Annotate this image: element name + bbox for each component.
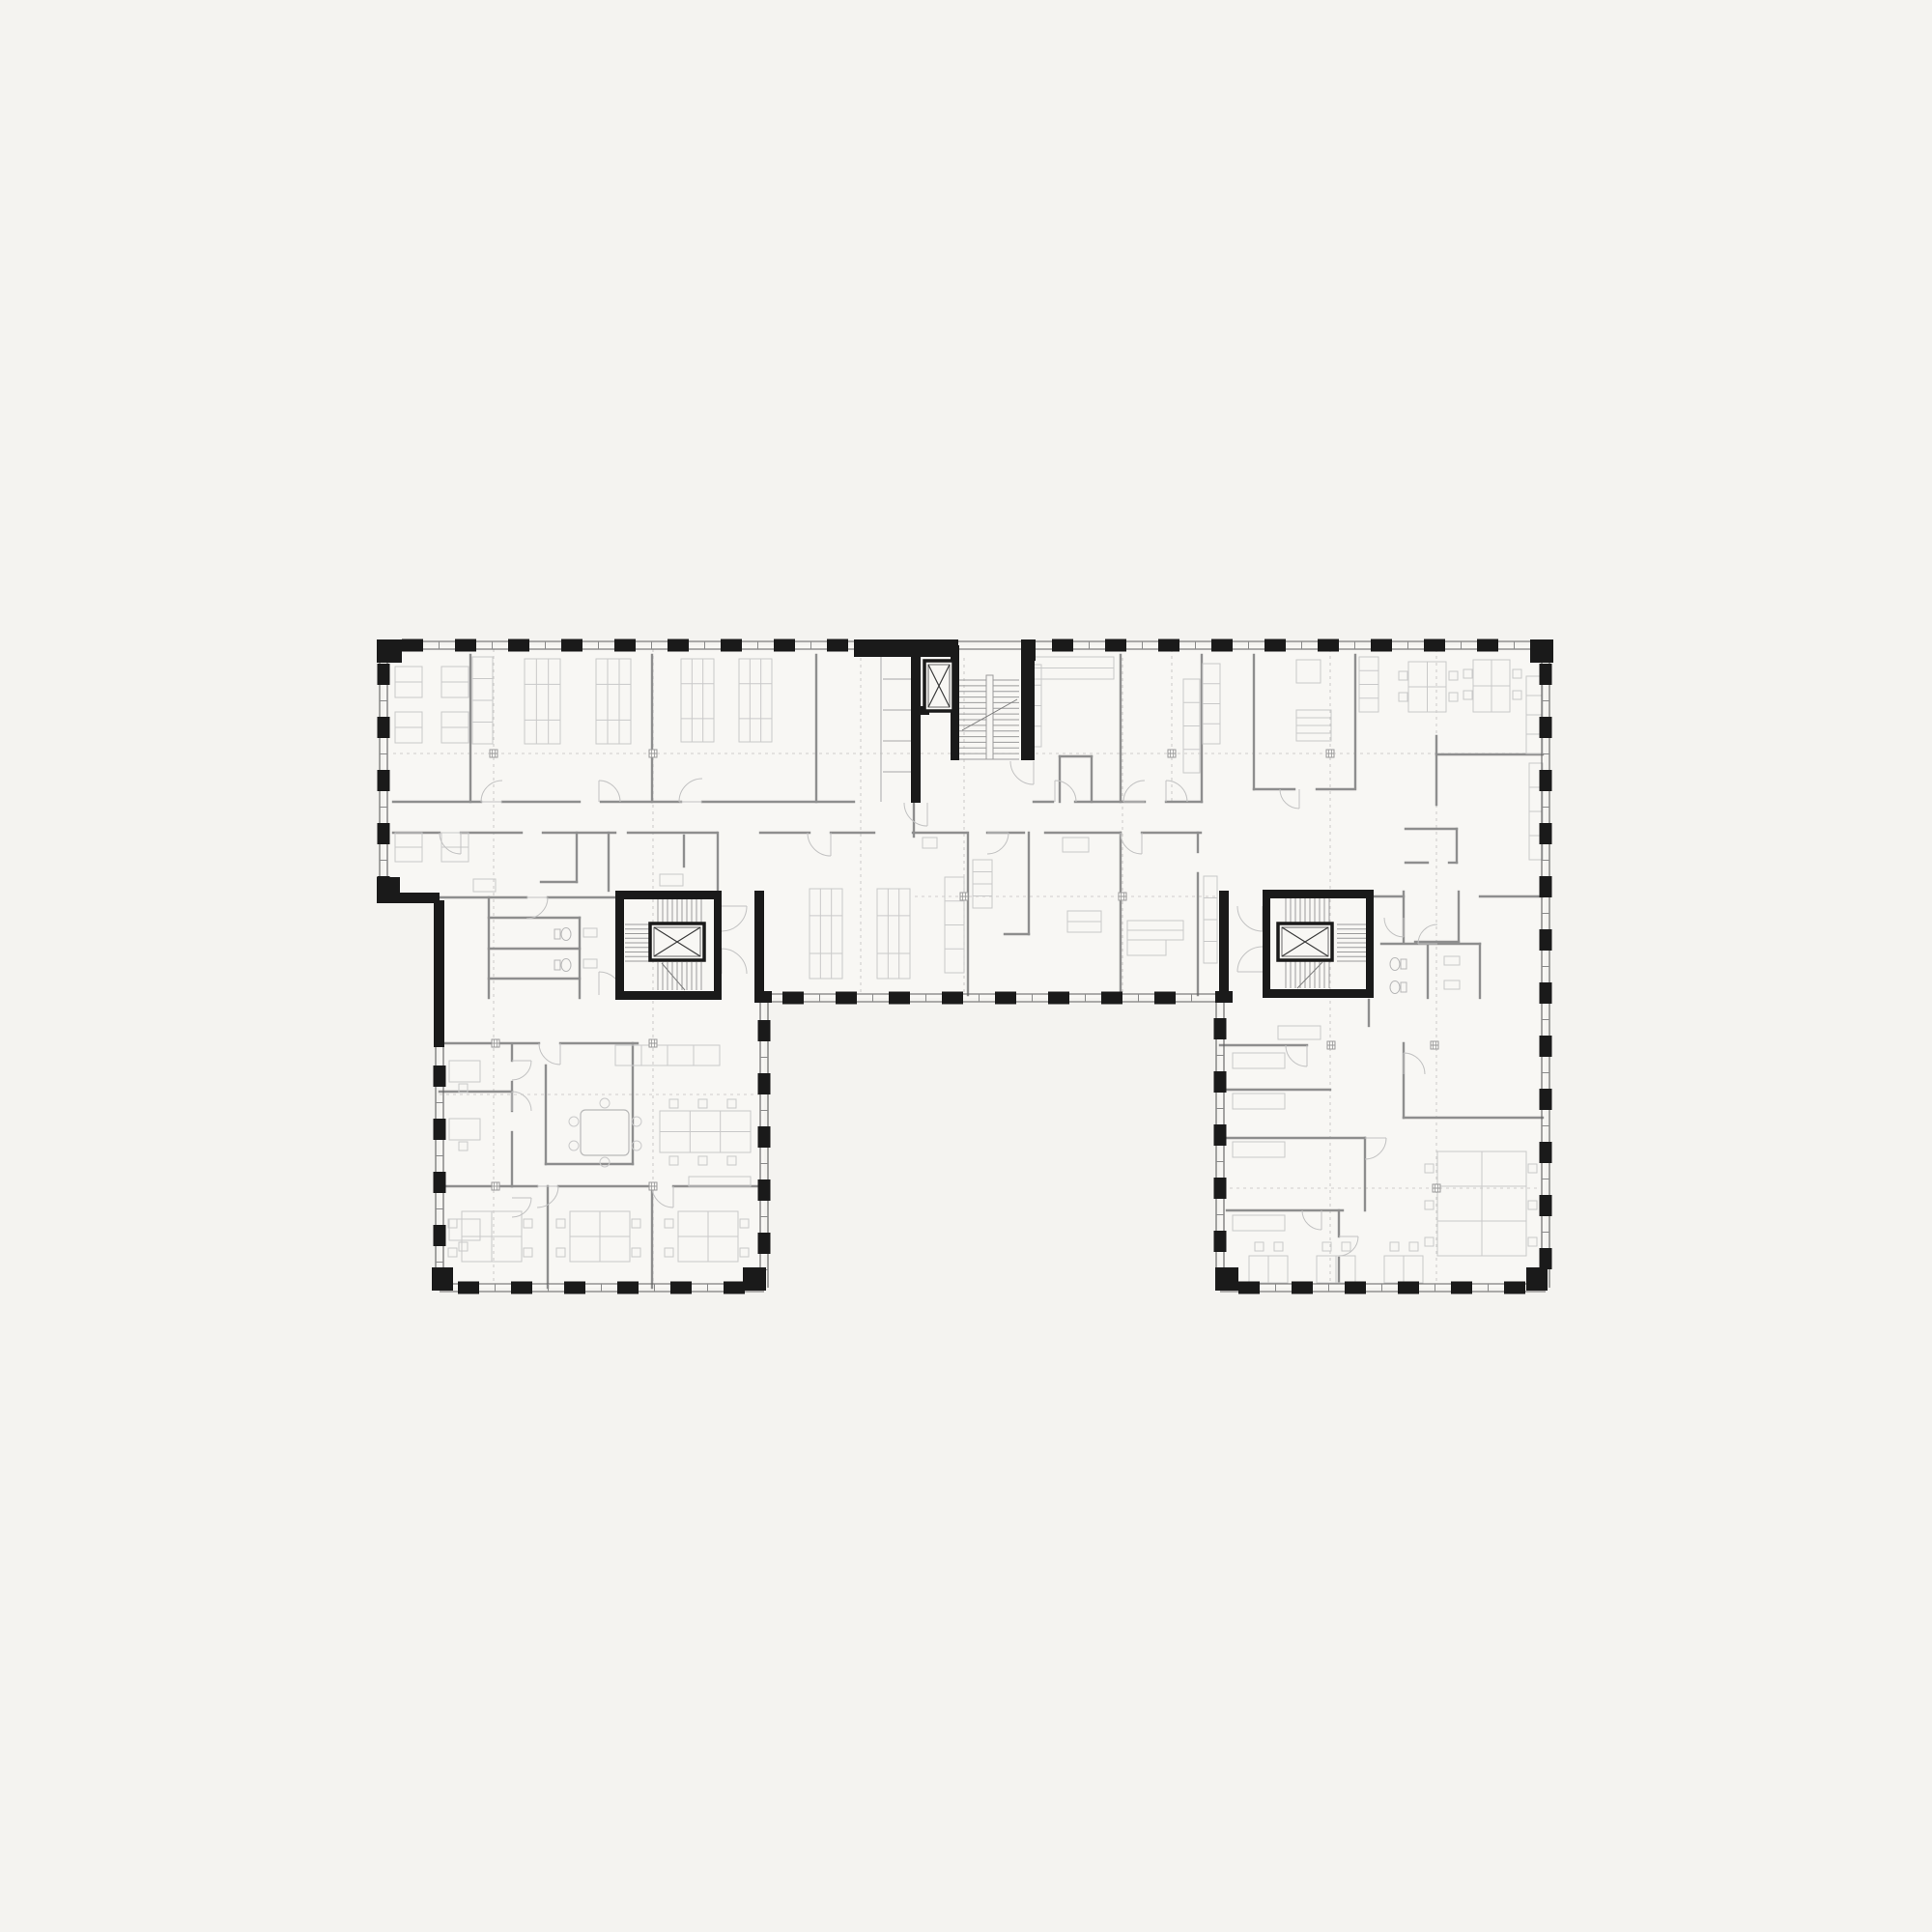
elevator-shaft-icon [1278, 923, 1332, 960]
elevator-shaft-icon [650, 923, 704, 960]
floor-plan-page [0, 0, 1932, 1932]
elevator-shaft-icon [924, 661, 953, 711]
floor-plan-svg [0, 0, 1932, 1932]
